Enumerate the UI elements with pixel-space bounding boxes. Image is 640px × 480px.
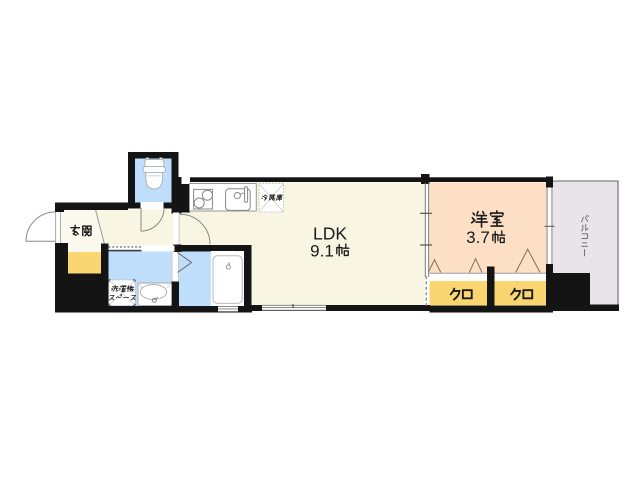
svg-text:9.1: 9.1 [310, 241, 334, 260]
svg-text:3.7: 3.7 [466, 228, 490, 247]
